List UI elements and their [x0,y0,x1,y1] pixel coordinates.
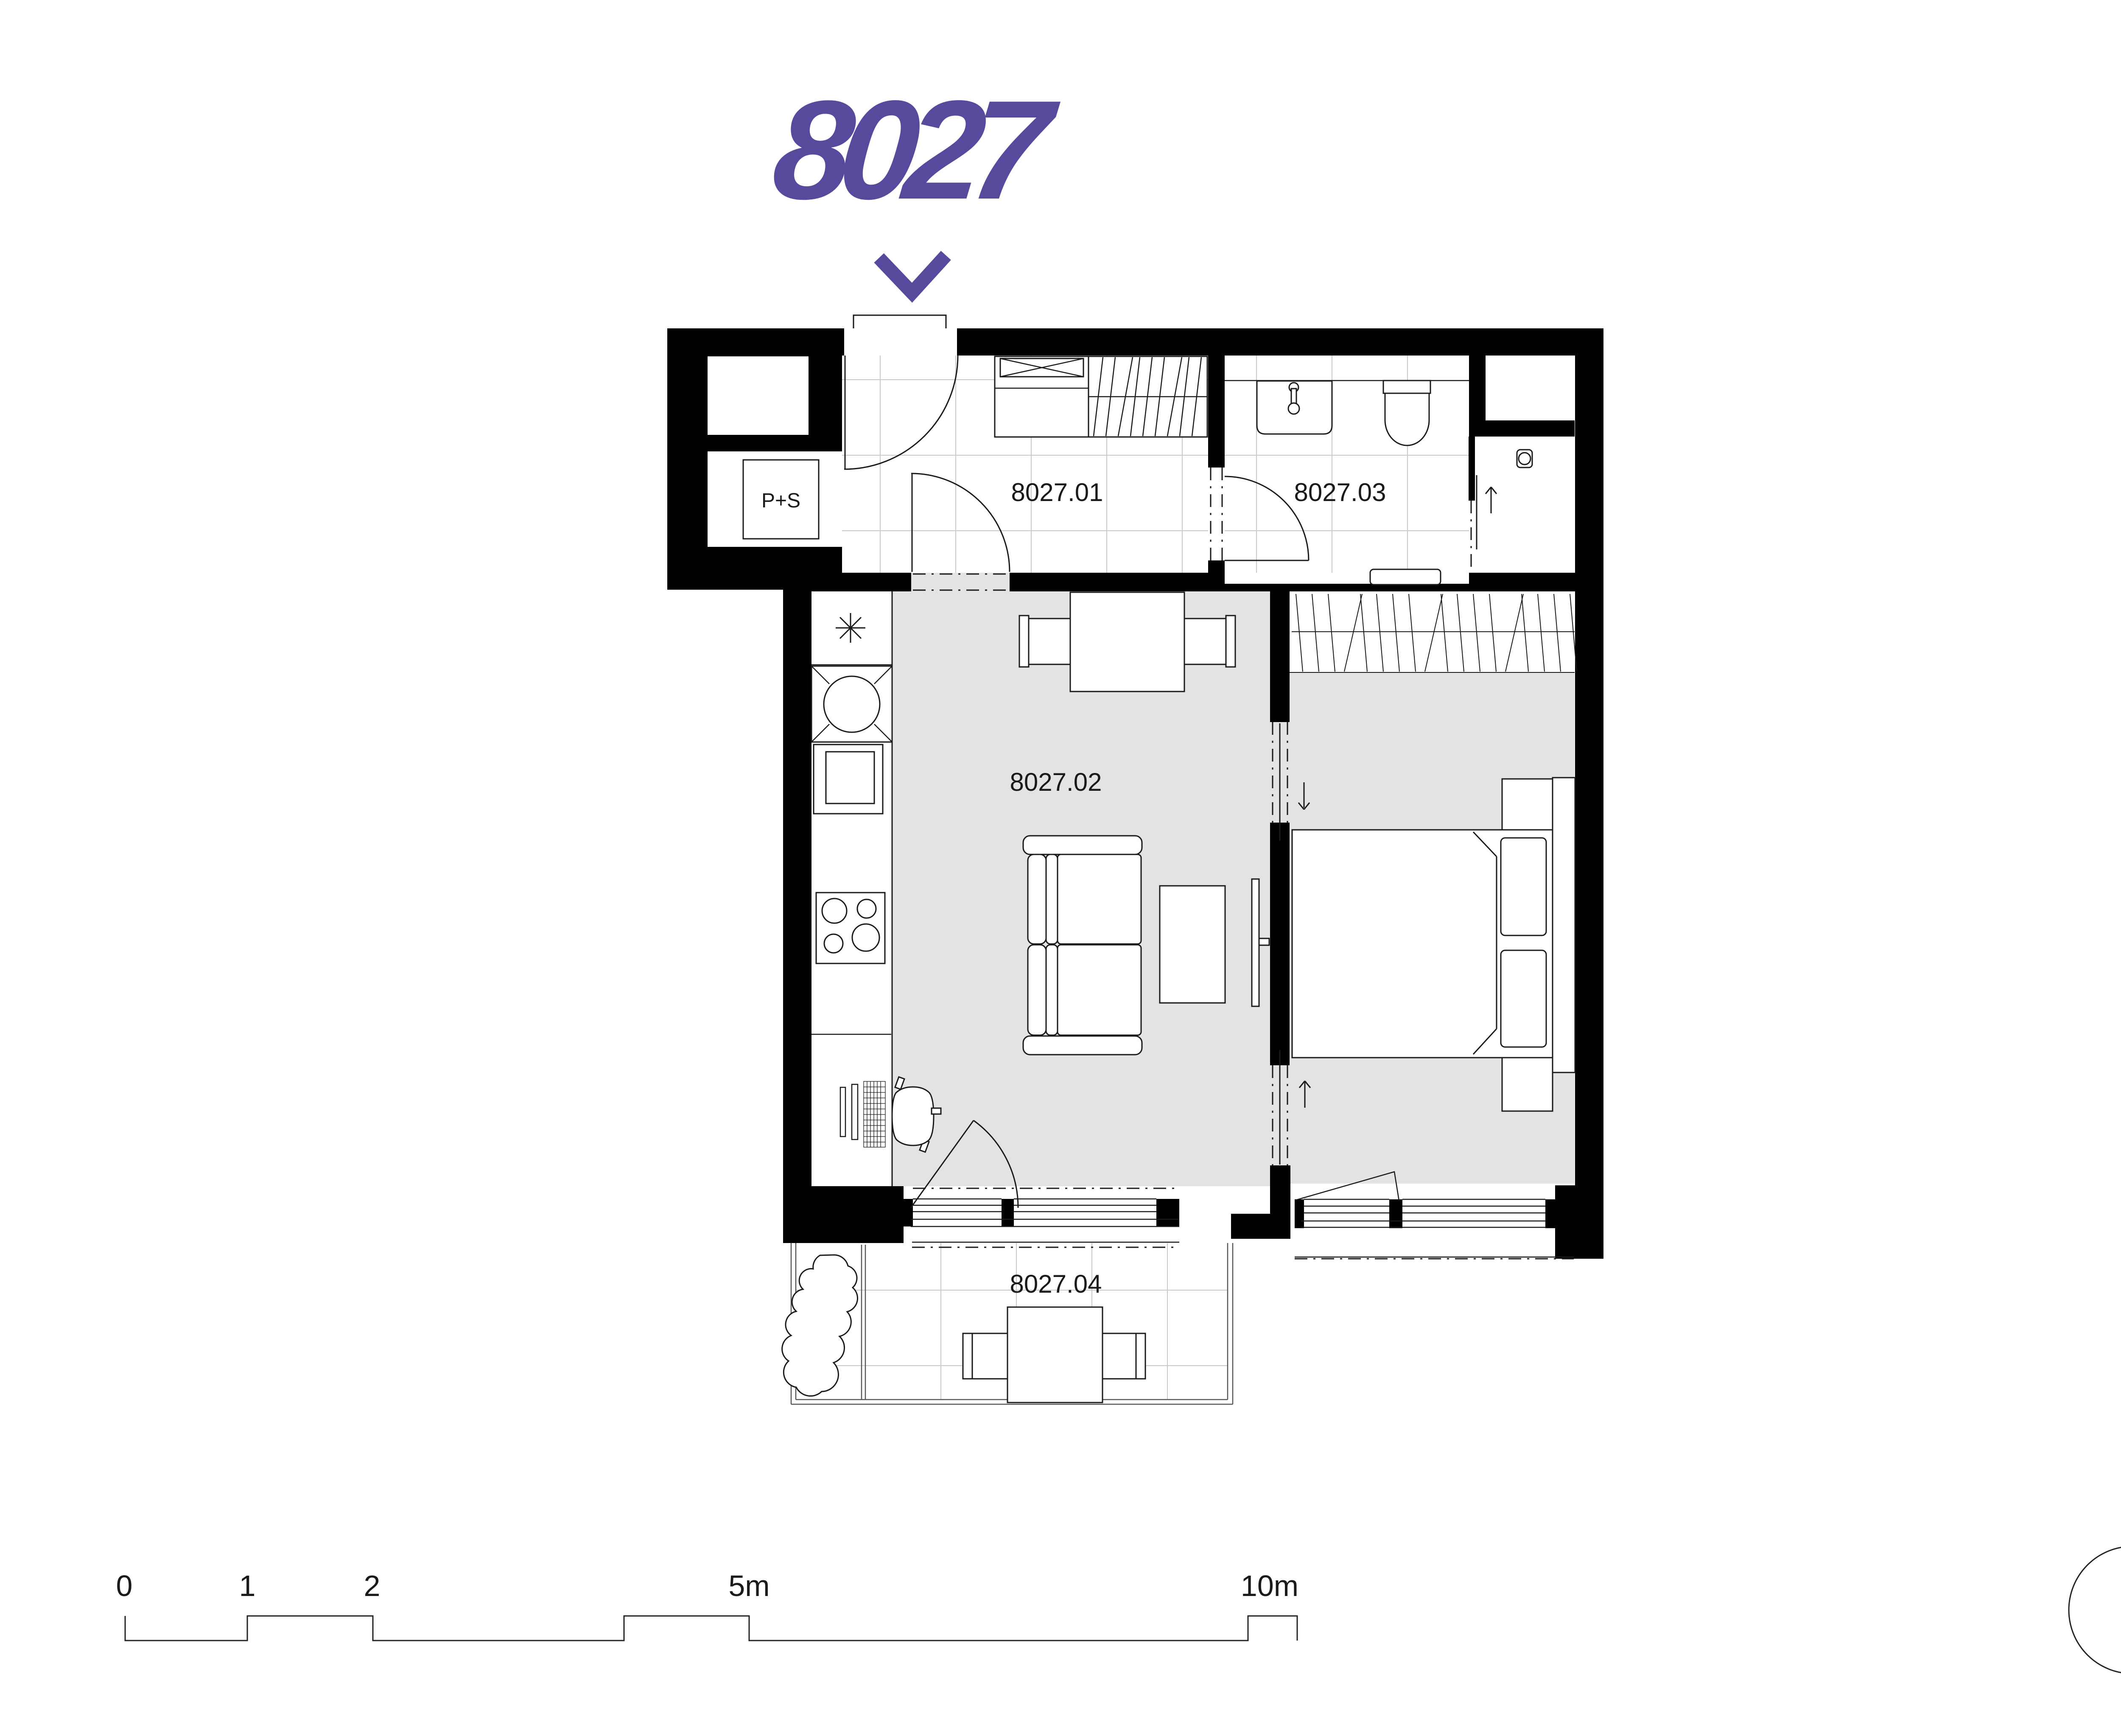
svg-text:0: 0 [116,1569,133,1602]
svg-text:5m: 5m [728,1569,769,1602]
svg-text:8027.04: 8027.04 [1010,1270,1102,1298]
svg-text:10m: 10m [1241,1569,1298,1602]
svg-text:8027.02: 8027.02 [1010,768,1102,796]
svg-text:8027.01: 8027.01 [1011,478,1103,507]
svg-text:8027.03: 8027.03 [1294,478,1386,507]
svg-text:P+S: P+S [761,490,800,512]
svg-text:1: 1 [239,1569,256,1602]
svg-text:2: 2 [364,1569,381,1602]
svg-text:8027: 8027 [767,71,1066,229]
